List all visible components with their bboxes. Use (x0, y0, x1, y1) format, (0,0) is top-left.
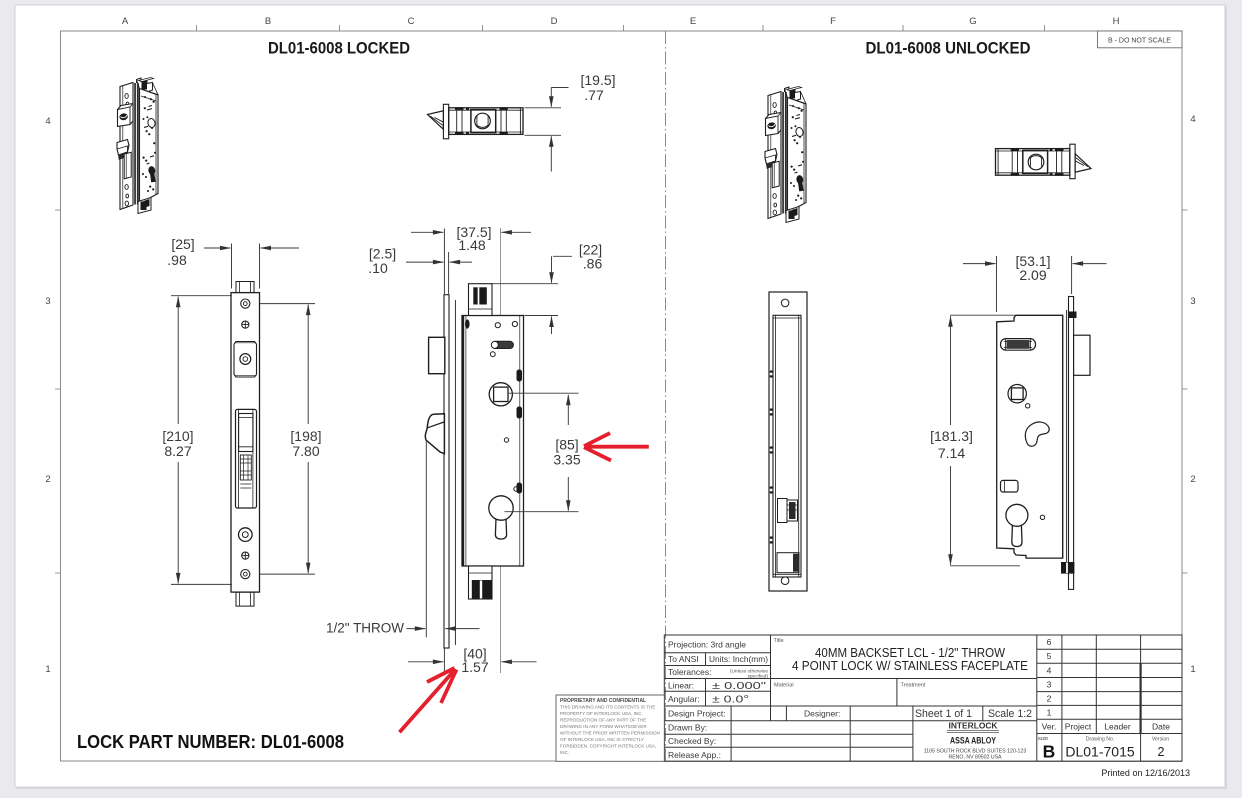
svg-text:Title: Title (774, 638, 784, 644)
svg-text:D: D (551, 16, 558, 27)
svg-text:Designer:: Designer: (804, 709, 840, 719)
svg-text:2: 2 (1047, 694, 1052, 704)
svg-text:DL01-7015: DL01-7015 (1065, 744, 1134, 760)
svg-text:1/2" THROW: 1/2" THROW (326, 621, 404, 636)
svg-text:5: 5 (1047, 651, 1052, 661)
svg-text:3.35: 3.35 (553, 452, 580, 468)
svg-text:± 0.0°: ± 0.0° (712, 693, 749, 705)
svg-text:Release App.:: Release App.: (668, 750, 721, 760)
svg-text:3: 3 (1190, 296, 1195, 307)
svg-text:A: A (122, 16, 129, 27)
svg-text:4: 4 (1047, 665, 1052, 675)
svg-text:4: 4 (45, 116, 50, 127)
svg-text:3: 3 (45, 296, 50, 307)
svg-text:Linear:: Linear: (668, 681, 694, 691)
svg-text:.98: .98 (167, 252, 187, 268)
svg-text:[19.5]: [19.5] (580, 72, 615, 88)
svg-text:Angular:: Angular: (668, 694, 700, 704)
svg-text:6: 6 (1047, 637, 1052, 647)
svg-text:RENO, NV 89502 USA: RENO, NV 89502 USA (948, 755, 1002, 761)
svg-text:2: 2 (1158, 745, 1165, 759)
svg-text:Scale 1:2: Scale 1:2 (988, 708, 1032, 720)
svg-text:[181.3]: [181.3] (930, 428, 973, 444)
svg-text:Checked By:: Checked By: (668, 736, 716, 746)
svg-text:2: 2 (45, 474, 50, 485)
svg-text:Version: Version (1152, 737, 1169, 743)
svg-text:Material: Material (774, 683, 794, 689)
svg-text:[25]: [25] (171, 236, 194, 252)
svg-text:4 POINT LOCK W/ STAINLESS FACE: 4 POINT LOCK W/ STAINLESS FACEPLATE (792, 658, 1028, 673)
svg-text:Date: Date (1152, 722, 1170, 732)
svg-text:Drawing No.: Drawing No. (1086, 737, 1115, 743)
svg-text:1: 1 (1190, 664, 1195, 675)
svg-text:To ANSI: To ANSI (668, 654, 699, 664)
svg-text:1: 1 (45, 664, 50, 675)
svg-text:H: H (1113, 16, 1120, 27)
svg-text:Sheet 1 of 1: Sheet 1 of 1 (915, 708, 972, 720)
svg-text:B: B (1043, 742, 1056, 762)
svg-text:DRAWING IN ANY FORM WHATSOEVER: DRAWING IN ANY FORM WHATSOEVER (560, 724, 647, 729)
svg-text:DL01-6008 UNLOCKED: DL01-6008 UNLOCKED (866, 40, 1031, 58)
svg-text:B - DO NOT SCALE: B - DO NOT SCALE (1108, 38, 1171, 45)
svg-text:[210]: [210] (162, 428, 193, 444)
svg-text:WITHOUT THE PRIOR WRITTEN PERM: WITHOUT THE PRIOR WRITTEN PERMISSION (560, 731, 660, 736)
svg-text:[198]: [198] (290, 428, 321, 444)
svg-text:2: 2 (1190, 474, 1195, 485)
svg-text:Treatment: Treatment (901, 683, 926, 689)
svg-text:Project: Project (1065, 722, 1092, 732)
svg-text:DL01-6008 LOCKED: DL01-6008 LOCKED (268, 40, 410, 58)
svg-text:1.48: 1.48 (458, 237, 485, 253)
svg-text:G: G (969, 16, 976, 27)
svg-text:INTERLOCK: INTERLOCK (949, 722, 998, 731)
svg-text:C: C (408, 16, 415, 27)
svg-text:INC.: INC. (560, 750, 569, 755)
svg-text:[85]: [85] (555, 437, 578, 453)
svg-text:Drawn By:: Drawn By: (668, 723, 707, 733)
svg-text:OF INTERLOCK USA, INC IS STRIC: OF INTERLOCK USA, INC IS STRICTLY (560, 737, 644, 742)
svg-text:REPRODUCTION OF ANY PART OF TH: REPRODUCTION OF ANY PART OF THE (560, 718, 646, 723)
svg-text:Units: Inch(mm): Units: Inch(mm) (709, 654, 768, 664)
svg-text:THIS DRAWING AND ITS CONTENTS: THIS DRAWING AND ITS CONTENTS IS THE (560, 705, 655, 710)
svg-text:1: 1 (1047, 707, 1052, 717)
svg-text:Tolerances:: Tolerances: (668, 667, 711, 677)
svg-text:Projection: 3rd angle: Projection: 3rd angle (668, 640, 746, 650)
svg-text:specified): specified) (747, 674, 768, 680)
svg-text:± 0.000": ± 0.000" (712, 680, 766, 692)
svg-text:7.80: 7.80 (292, 443, 319, 459)
svg-text:F: F (830, 16, 836, 27)
svg-text:4: 4 (1190, 114, 1195, 125)
svg-text:7.14: 7.14 (938, 445, 965, 461)
svg-text:Leader: Leader (1104, 722, 1131, 732)
svg-text:LOCK PART NUMBER: DL01-6008: LOCK PART NUMBER: DL01-6008 (77, 731, 344, 752)
svg-text:FORBIDDEN. COPYRIGHT INTERLOCK: FORBIDDEN. COPYRIGHT INTERLOCK USA, (560, 744, 656, 749)
svg-text:.86: .86 (583, 256, 603, 272)
svg-text:Ver.: Ver. (1042, 722, 1057, 732)
svg-text:Design Project:: Design Project: (668, 709, 726, 719)
svg-text:Printed on 12/16/2013: Printed on 12/16/2013 (1101, 768, 1190, 778)
svg-text:2.09: 2.09 (1019, 267, 1046, 283)
svg-text:PROPRIETARY AND CONFIDENTIAL: PROPRIETARY AND CONFIDENTIAL (560, 698, 646, 704)
svg-text:3: 3 (1047, 680, 1052, 690)
svg-text:ASSA ABLOY: ASSA ABLOY (950, 736, 996, 747)
svg-text:.10: .10 (368, 260, 388, 276)
svg-text:E: E (690, 16, 696, 27)
svg-text:PROPERTY OF INTERLOCK USA, INC: PROPERTY OF INTERLOCK USA, INC. (560, 711, 643, 716)
svg-text:B: B (265, 16, 271, 27)
svg-text:.77: .77 (584, 87, 604, 103)
svg-text:8.27: 8.27 (164, 443, 191, 459)
svg-text:1.57: 1.57 (461, 659, 488, 675)
